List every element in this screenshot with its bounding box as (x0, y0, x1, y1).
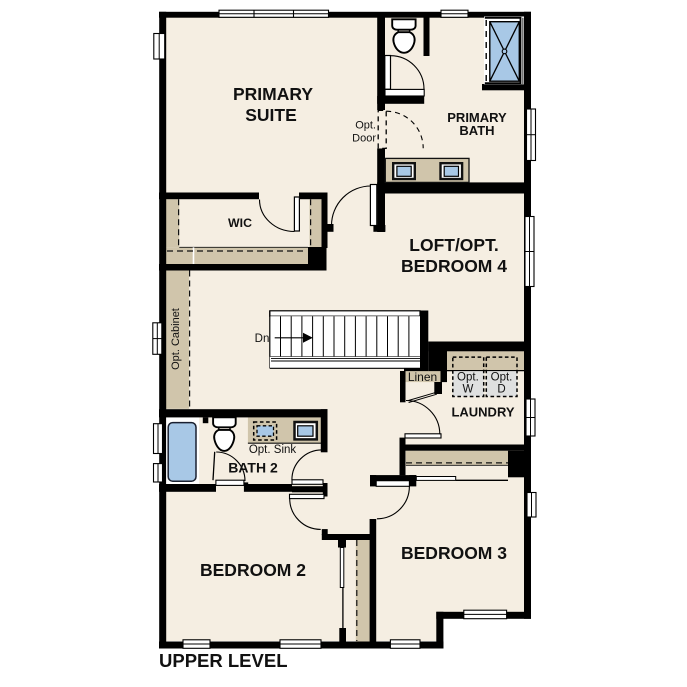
svg-text:Opt. Sink: Opt. Sink (249, 444, 297, 456)
svg-text:Opt. Cabinet: Opt. Cabinet (170, 308, 182, 370)
svg-text:LAUNDRY: LAUNDRY (451, 405, 514, 420)
svg-text:BEDROOM 2: BEDROOM 2 (200, 560, 306, 580)
svg-text:Opt.: Opt. (355, 120, 376, 132)
svg-text:Linen: Linen (408, 370, 437, 384)
svg-text:PRIMARY: PRIMARY (233, 84, 313, 104)
svg-text:BEDROOM 3: BEDROOM 3 (401, 543, 507, 563)
svg-text:BATH: BATH (459, 123, 494, 138)
svg-text:BATH 2: BATH 2 (228, 460, 278, 476)
svg-text:LOFT/OPT.: LOFT/OPT. (409, 235, 498, 255)
svg-text:BEDROOM 4: BEDROOM 4 (401, 256, 507, 276)
svg-text:D: D (497, 384, 505, 396)
svg-text:Opt.: Opt. (457, 372, 479, 384)
svg-text:Opt.: Opt. (491, 372, 513, 384)
svg-text:W: W (462, 384, 473, 396)
svg-text:SUITE: SUITE (245, 105, 297, 125)
svg-text:WIC: WIC (228, 216, 252, 230)
svg-text:UPPER LEVEL: UPPER LEVEL (159, 650, 288, 671)
svg-text:Dn: Dn (255, 333, 270, 345)
svg-text:Door: Door (352, 133, 376, 145)
